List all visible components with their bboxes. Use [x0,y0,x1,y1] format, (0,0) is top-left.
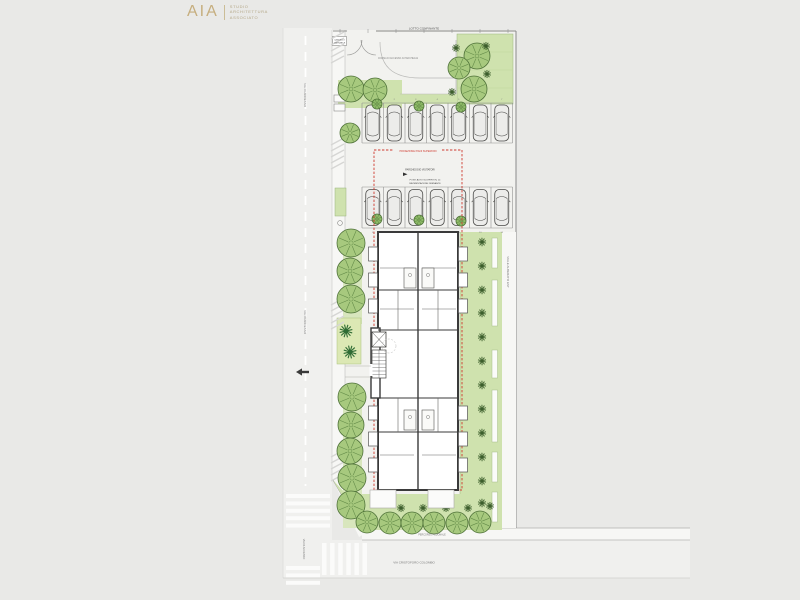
tree [337,438,363,464]
balcony [459,458,468,472]
label-street-right: VIALE ALBERATO EST [506,256,510,288]
tree [372,214,382,224]
street-horizontal [283,540,690,578]
zebra-bar [286,581,320,585]
balcony [369,247,378,261]
parked-car [493,105,510,141]
parked-car [472,105,489,141]
zebra-bar [286,501,330,505]
balcony [369,299,378,313]
zebra-bar [286,524,330,528]
tree [456,216,466,226]
tree [338,412,364,438]
zebra-bar [286,573,320,577]
tree [448,57,470,79]
parked-car [386,105,403,141]
tree [338,76,364,102]
tree [337,285,365,313]
zebra-bar [286,516,330,520]
label-walkway: PERCORSO PEDONALE [418,534,446,537]
zebra-bar [330,543,335,575]
balcony [459,406,468,420]
label-projection: PROIEZIONE PIANI SUPERIORI [399,150,436,153]
tree [337,229,365,257]
tree [414,101,424,111]
balcony [369,458,378,472]
tree [461,76,487,102]
tree [379,512,401,534]
tree [372,99,382,109]
label-street-bottom: VIA CRISTOFORO COLOMBO [393,561,435,565]
planter-bench [492,280,498,326]
tree [338,383,366,411]
zebra-bar [363,543,368,575]
balcony [369,432,378,446]
tree [340,123,360,143]
zebra-bar [286,566,320,570]
palm-planter [337,318,361,364]
green-strip-entry [400,94,457,104]
tree [401,512,423,534]
balcony [369,406,378,420]
site-plan-drawing: 1234567891011121314 [0,0,800,600]
zebra-bar [354,543,359,575]
parked-car [386,190,403,226]
balcony [369,273,378,287]
balcony [459,299,468,313]
building [369,232,468,508]
ground-terrace [370,490,396,508]
stairs [372,350,386,378]
planter-bench [492,238,498,268]
label-street-left-top: VIA DI ACCESSO [303,83,307,108]
ground-terrace [428,490,454,508]
tree [469,511,491,533]
zebra-bar [286,509,330,513]
balcony [459,432,468,446]
label-parking-note-2: POSTI AUTO SCOPERTI N. 14 [410,179,441,182]
zebra-bar [338,543,343,575]
balcony [459,247,468,261]
zebra-bar [346,543,351,575]
parked-car [429,105,446,141]
utility-box [334,104,345,111]
tree [338,464,366,492]
label-neighbor-lot: LOTTO CONFINANTE [409,27,439,31]
bathroom [422,410,434,430]
planter-bench [492,390,498,442]
tree [456,102,466,112]
bathroom [404,410,416,430]
sidewalk-planter [335,188,346,216]
parked-car [429,190,446,226]
zebra-bar [322,543,327,575]
label-street-left-bottom: VIA DI ACCESSO [302,539,306,560]
label-parking-note-1: PARCHEGGIO VISITATORI [405,169,435,172]
tree [446,512,468,534]
label-gate-1: CANCELLO [334,39,345,42]
balcony [459,273,468,287]
tree [356,511,378,533]
label-gate-2: CARRABILE [334,42,346,45]
label-parking-note-3: PAVIMENTAZIONE DRENANTE [409,182,441,185]
bathroom [404,268,416,288]
tree [414,215,424,225]
label-street-left-mid: VIA DI ACCESSO [303,310,307,335]
tree [337,258,363,284]
parked-car [364,105,381,141]
parked-car [472,190,489,226]
planter-bench [492,350,498,378]
zebra-bar [286,494,330,498]
bathroom [422,268,434,288]
label-driveway: CORSIA DI ACCESSO AI PARCHEGGI [378,57,419,60]
parked-car [493,190,510,226]
planter-bench [492,452,498,482]
site-plan-sheet: AIA STUDIO ARCHITETTURA ASSOCIATO [0,0,800,600]
tree [423,512,445,534]
tree [363,78,387,102]
